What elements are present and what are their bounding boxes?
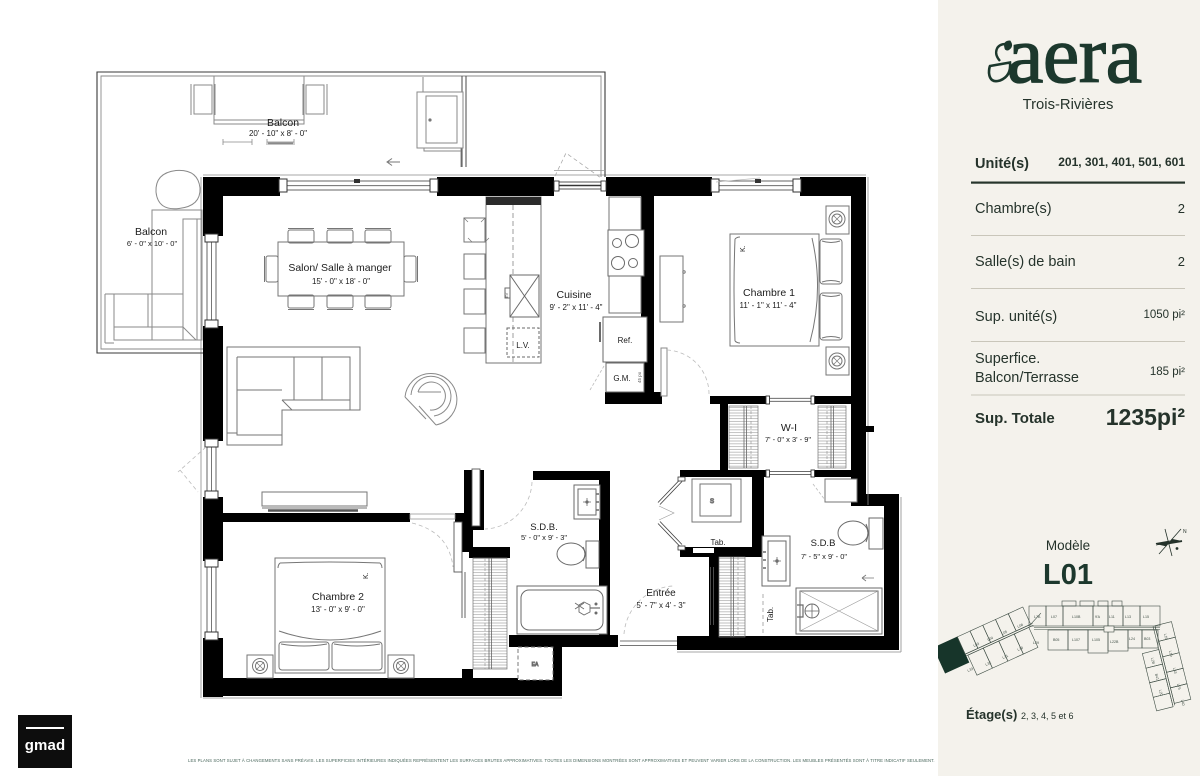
svg-text:Cuisine: Cuisine: [556, 289, 591, 301]
svg-text:L75: L75: [1176, 683, 1181, 690]
svg-text:Tab.: Tab.: [710, 538, 725, 547]
svg-text:9'A: 9'A: [1095, 615, 1101, 619]
svg-text:L01: L01: [1043, 559, 1093, 591]
svg-text:L24: L24: [1129, 637, 1135, 641]
svg-text:K.: K.: [363, 572, 370, 579]
svg-text:N: N: [1183, 529, 1187, 535]
svg-text:K.: K.: [740, 245, 747, 252]
svg-text:7' - 5" x 9' - 0": 7' - 5" x 9' - 0": [801, 552, 847, 561]
svg-text:L29: L29: [1033, 641, 1039, 645]
svg-text:aera: aera: [1007, 9, 1142, 100]
svg-text:L15: L15: [1143, 615, 1149, 619]
svg-text:L.V.: L.V.: [516, 341, 530, 350]
svg-text:Chambre 1: Chambre 1: [743, 287, 795, 299]
svg-text:Chambre 2: Chambre 2: [312, 591, 364, 603]
svg-text:EV: EV: [504, 292, 509, 298]
svg-text:L31: L31: [1002, 654, 1009, 660]
svg-text:5' - 0" x 9' - 3": 5' - 0" x 9' - 3": [521, 533, 567, 542]
svg-text:Trois-Rivières: Trois-Rivières: [1023, 97, 1114, 113]
svg-text:L22B: L22B: [1110, 640, 1119, 644]
svg-text:EA: EA: [532, 662, 539, 668]
svg-text:S: S: [710, 499, 714, 505]
svg-text:1235pi²: 1235pi²: [1106, 404, 1186, 430]
svg-text:L32: L32: [985, 661, 992, 667]
svg-text:W-I: W-I: [781, 422, 797, 434]
svg-text:L13: L13: [1125, 615, 1131, 619]
svg-text:Sup. Totale: Sup. Totale: [975, 410, 1055, 427]
svg-text:7' - 0" x 3' - 9": 7' - 0" x 3' - 9": [765, 435, 811, 444]
svg-text:L2B: L2B: [1150, 657, 1156, 665]
svg-text:L40: L40: [1180, 699, 1185, 706]
svg-text:1050 pi²: 1050 pi²: [1143, 309, 1185, 321]
svg-text:L1b: L1b: [1168, 650, 1173, 657]
svg-text:L107: L107: [1072, 638, 1080, 642]
svg-text:Étage(s): Étage(s): [966, 707, 1017, 722]
svg-text:9' - 2" x 11' - 4": 9' - 2" x 11' - 4": [549, 303, 602, 312]
svg-text:Ref.: Ref.: [618, 336, 633, 345]
svg-text:11' - 1" x 11' - 4": 11' - 1" x 11' - 4": [740, 301, 797, 310]
svg-text:B41: B41: [1154, 673, 1159, 680]
svg-text:B05: B05: [1053, 638, 1059, 642]
svg-text:2: 2: [1178, 201, 1185, 216]
svg-text:Balcon: Balcon: [135, 226, 167, 238]
svg-text:B03: B03: [1144, 637, 1150, 641]
svg-text:Sup. unité(s): Sup. unité(s): [975, 309, 1057, 325]
svg-text:Balcon/Terrasse: Balcon/Terrasse: [975, 370, 1079, 386]
svg-text:Salle(s) de bain: Salle(s) de bain: [975, 254, 1076, 270]
svg-text:20' - 10" x 8' - 0": 20' - 10" x 8' - 0": [249, 129, 307, 138]
svg-text:Tab.: Tab.: [766, 607, 775, 622]
svg-text:Chambre(s): Chambre(s): [975, 201, 1052, 217]
svg-text:L10B: L10B: [1072, 615, 1081, 619]
svg-text:L30: L30: [1017, 646, 1024, 652]
svg-text:15' - 0" x 18' - 0": 15' - 0" x 18' - 0": [312, 277, 370, 286]
svg-text:S.D.B: S.D.B: [811, 538, 836, 549]
svg-text:L07: L07: [1051, 615, 1057, 619]
svg-text:Entrée: Entrée: [646, 588, 676, 599]
svg-text:45 po: 45 po: [637, 371, 642, 383]
svg-text:2, 3, 4, 5 et 6: 2, 3, 4, 5 et 6: [1021, 711, 1074, 721]
svg-text:L105: L105: [1092, 638, 1100, 642]
svg-text:S.D.B.: S.D.B.: [530, 522, 557, 533]
svg-text:L7A: L7A: [1034, 615, 1041, 619]
svg-text:Balcon: Balcon: [267, 117, 299, 129]
svg-text:G.M.: G.M.: [613, 374, 630, 383]
svg-text:13' - 0" x 9' - 0": 13' - 0" x 9' - 0": [311, 605, 365, 614]
svg-text:Unité(s): Unité(s): [975, 156, 1029, 172]
svg-text:L33: L33: [967, 667, 974, 673]
svg-text:5' - 7" x 4' - 3": 5' - 7" x 4' - 3": [636, 601, 685, 610]
svg-text:Superfice.: Superfice.: [975, 351, 1040, 367]
svg-text:201, 301, 401, 501, 601: 201, 301, 401, 501, 601: [1058, 155, 1185, 169]
svg-text:Salon/ Salle à manger: Salon/ Salle à manger: [288, 262, 392, 274]
svg-text:L11: L11: [1109, 615, 1115, 619]
svg-text:2: 2: [1178, 254, 1185, 269]
svg-text:185 pi²: 185 pi²: [1150, 366, 1185, 378]
svg-text:L03: L03: [973, 642, 980, 648]
svg-text:Modèle: Modèle: [1046, 538, 1090, 553]
svg-text:6' - 0" x 10' - 0": 6' - 0" x 10' - 0": [127, 239, 178, 248]
